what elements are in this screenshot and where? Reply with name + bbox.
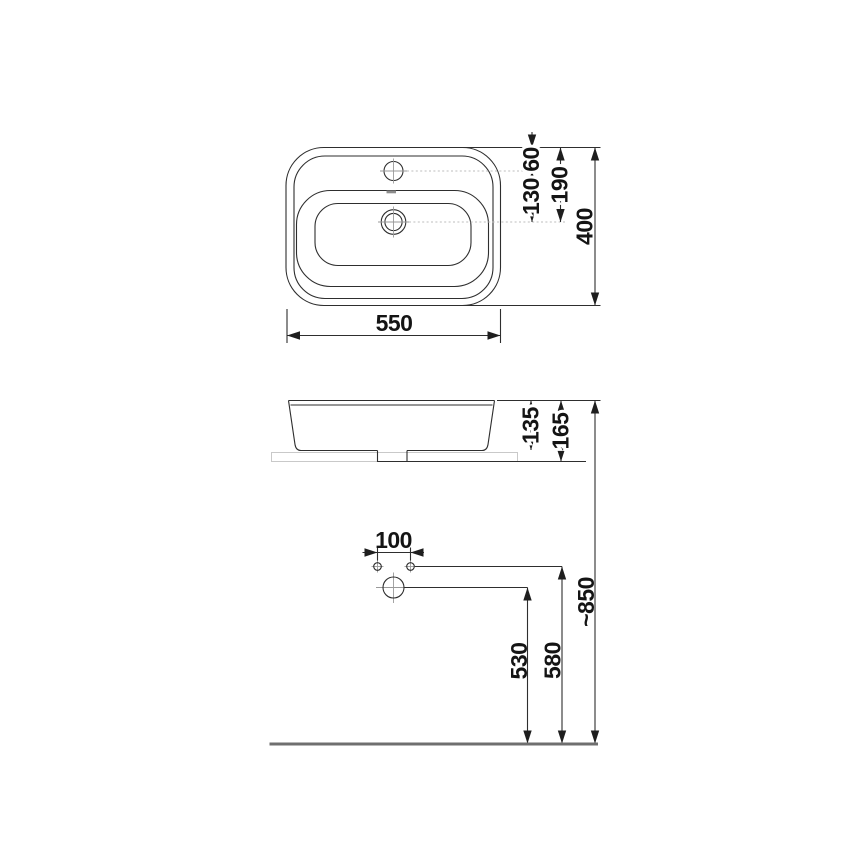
dim-arrow bbox=[591, 731, 599, 744]
basin-left-profile bbox=[289, 401, 378, 451]
technical-drawing: 550 60 130 190 400 135 165 bbox=[0, 0, 868, 868]
dim-arrow bbox=[591, 401, 599, 414]
top-view: 550 60 130 190 400 bbox=[286, 132, 601, 343]
dim-label-drain-height: 530 bbox=[506, 643, 532, 680]
mounting-hole-left bbox=[372, 561, 384, 573]
dim-arrow bbox=[556, 148, 564, 161]
dim-arrow bbox=[558, 731, 566, 744]
dim-label-edge-to-drain: 190 bbox=[546, 167, 572, 204]
dim-label-total-height: 165 bbox=[547, 412, 573, 450]
countertop bbox=[272, 453, 518, 462]
dim-arrow bbox=[591, 148, 599, 161]
faucet-hole bbox=[380, 159, 537, 184]
dim-arrow bbox=[556, 209, 564, 222]
bowl-outer-edge bbox=[297, 191, 489, 287]
basin-right-profile bbox=[407, 401, 495, 451]
dim-arrow bbox=[558, 567, 566, 580]
mounting-hole-right bbox=[405, 561, 417, 573]
dim-label-depth: 400 bbox=[571, 208, 597, 245]
dim-arrow bbox=[411, 548, 424, 556]
dim-arrow bbox=[523, 588, 531, 601]
dim-label-hole-spacing: 100 bbox=[375, 527, 412, 553]
dim-label-width: 550 bbox=[376, 310, 413, 336]
dim-label-basin-height: 135 bbox=[517, 406, 543, 444]
dim-arrow bbox=[557, 401, 565, 414]
dim-label-holes-height: 580 bbox=[539, 642, 565, 679]
side-view: 135 165 bbox=[272, 401, 601, 462]
dim-arrow bbox=[528, 135, 536, 148]
dim-arrow bbox=[287, 331, 300, 339]
dim-arrow bbox=[557, 449, 565, 462]
dim-label-rim-height: ~850 bbox=[573, 577, 599, 627]
dim-arrow bbox=[488, 331, 501, 339]
dim-arrow bbox=[591, 293, 599, 306]
brand-mark bbox=[387, 191, 397, 194]
dim-label-faucet-offset: 60 bbox=[518, 147, 544, 172]
dim-label-faucet-to-drain: 130 bbox=[518, 178, 544, 215]
drawing-canvas: 550 60 130 190 400 135 165 bbox=[0, 0, 868, 868]
dim-arrow bbox=[523, 731, 531, 744]
